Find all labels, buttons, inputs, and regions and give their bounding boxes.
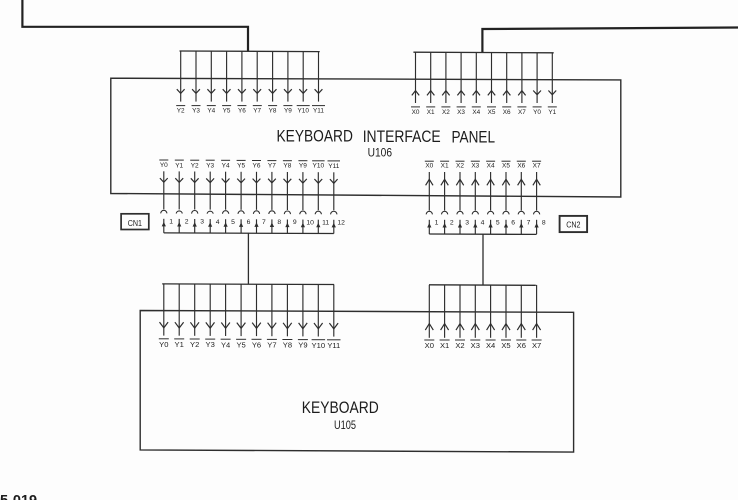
- svg-text:X7: X7: [533, 163, 541, 170]
- svg-text:CN2: CN2: [566, 221, 581, 230]
- svg-text:X6: X6: [517, 163, 525, 170]
- svg-text:11: 11: [322, 219, 329, 226]
- svg-text:KEYBOARD: KEYBOARD: [277, 127, 354, 145]
- svg-text:2: 2: [450, 220, 454, 227]
- svg-text:X6: X6: [517, 341, 526, 350]
- svg-text:12: 12: [337, 220, 345, 227]
- svg-text:X5: X5: [501, 341, 510, 350]
- svg-text:INTERFACE: INTERFACE: [363, 128, 441, 146]
- svg-text:Y11: Y11: [328, 163, 339, 170]
- svg-text:Y7: Y7: [253, 108, 261, 115]
- svg-text:CN1: CN1: [128, 219, 143, 228]
- svg-text:1: 1: [435, 220, 439, 227]
- svg-text:Y5: Y5: [236, 340, 245, 349]
- svg-text:Y2: Y2: [191, 162, 199, 169]
- svg-text:U106: U106: [368, 146, 393, 160]
- svg-text:Y1: Y1: [548, 109, 556, 116]
- svg-text:3: 3: [465, 220, 469, 227]
- svg-text:PANEL: PANEL: [452, 128, 496, 146]
- svg-text:Y0: Y0: [159, 340, 168, 349]
- svg-text:4: 4: [216, 219, 220, 226]
- svg-text:2: 2: [185, 219, 189, 226]
- svg-text:X1: X1: [427, 109, 435, 116]
- svg-text:Y9: Y9: [284, 108, 292, 115]
- svg-text:X2: X2: [456, 163, 464, 170]
- svg-text:X4: X4: [472, 109, 480, 116]
- svg-text:Y8: Y8: [283, 163, 291, 170]
- svg-text:X0: X0: [425, 341, 434, 350]
- svg-text:Y8: Y8: [269, 108, 277, 115]
- svg-text:Y3: Y3: [206, 162, 214, 169]
- svg-text:Y3: Y3: [206, 340, 215, 349]
- svg-text:4: 4: [481, 220, 485, 227]
- svg-text:Y4: Y4: [207, 108, 215, 115]
- svg-text:Y11: Y11: [313, 108, 324, 115]
- svg-text:Y0: Y0: [160, 162, 168, 169]
- svg-text:X7: X7: [532, 341, 541, 350]
- svg-text:Y9: Y9: [299, 163, 307, 170]
- svg-text:X0: X0: [412, 109, 420, 116]
- svg-text:X4: X4: [486, 341, 495, 350]
- svg-text:Y1: Y1: [175, 340, 184, 349]
- svg-text:Y10: Y10: [298, 108, 310, 115]
- svg-text:8: 8: [277, 219, 281, 226]
- svg-text:6: 6: [511, 220, 515, 227]
- svg-text:7: 7: [527, 220, 531, 227]
- svg-text:Y8: Y8: [283, 341, 292, 350]
- svg-text:X2: X2: [455, 341, 464, 350]
- svg-text:8: 8: [542, 220, 546, 227]
- svg-text:Y4: Y4: [222, 162, 230, 169]
- svg-text:X5: X5: [488, 109, 496, 116]
- svg-text:5-019: 5-019: [0, 493, 37, 500]
- svg-text:1: 1: [169, 219, 173, 226]
- svg-text:Y10: Y10: [312, 341, 326, 350]
- svg-text:X1: X1: [441, 163, 449, 170]
- svg-text:Y6: Y6: [253, 163, 261, 170]
- svg-text:Y6: Y6: [238, 108, 246, 115]
- svg-text:Y5: Y5: [223, 108, 231, 115]
- svg-text:Y4: Y4: [221, 340, 230, 349]
- svg-text:X7: X7: [518, 109, 526, 116]
- svg-text:7: 7: [262, 219, 266, 226]
- svg-text:X5: X5: [502, 163, 510, 170]
- svg-text:X3: X3: [471, 163, 479, 170]
- svg-text:Y0: Y0: [533, 109, 541, 116]
- svg-text:Y1: Y1: [175, 162, 183, 169]
- svg-text:X4: X4: [487, 163, 495, 170]
- svg-text:6: 6: [247, 219, 251, 226]
- svg-text:X6: X6: [503, 109, 511, 116]
- svg-text:X1: X1: [440, 341, 449, 350]
- svg-text:Y11: Y11: [327, 341, 340, 350]
- svg-text:X0: X0: [425, 163, 433, 170]
- svg-text:KEYBOARD: KEYBOARD: [302, 398, 379, 417]
- svg-text:9: 9: [293, 219, 297, 226]
- svg-text:Y2: Y2: [190, 340, 199, 349]
- svg-text:X3: X3: [457, 109, 465, 116]
- svg-text:Y2: Y2: [177, 108, 185, 115]
- svg-text:U105: U105: [334, 418, 356, 432]
- svg-text:10: 10: [306, 219, 314, 226]
- svg-text:Y7: Y7: [267, 341, 276, 350]
- svg-text:5: 5: [231, 219, 235, 226]
- svg-text:5: 5: [496, 220, 500, 227]
- svg-text:Y3: Y3: [192, 108, 200, 115]
- svg-text:Y5: Y5: [237, 163, 245, 170]
- svg-text:Y10: Y10: [313, 163, 325, 170]
- svg-text:X2: X2: [442, 109, 450, 116]
- svg-text:Y6: Y6: [252, 340, 261, 349]
- svg-text:X3: X3: [471, 341, 480, 350]
- svg-text:3: 3: [200, 219, 204, 226]
- svg-text:Y9: Y9: [298, 341, 307, 350]
- svg-text:Y7: Y7: [268, 163, 276, 170]
